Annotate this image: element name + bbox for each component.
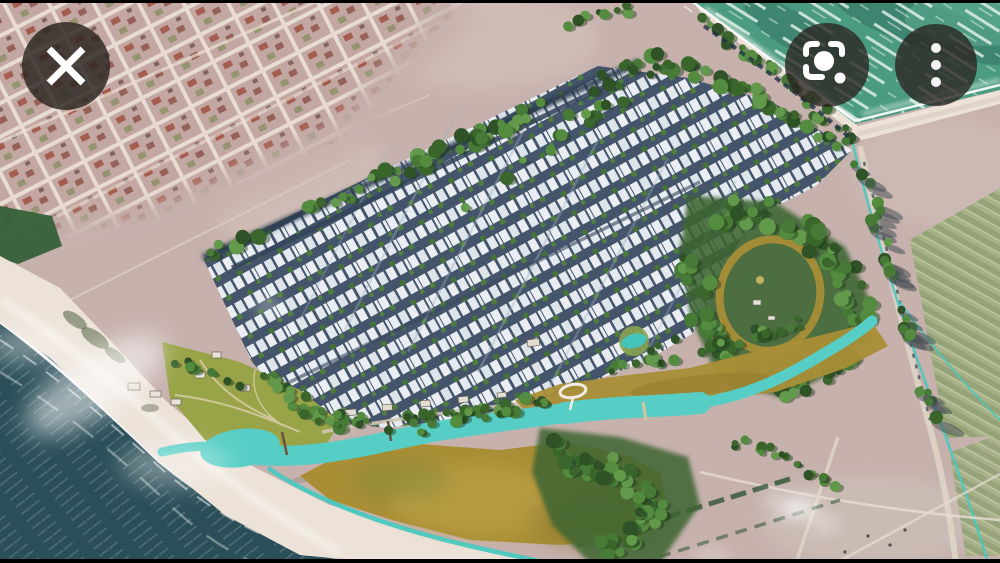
three-dot-menu-icon [929,42,943,88]
letterbox-top [0,0,1000,3]
letterbox-bottom [0,559,1000,563]
more-options-button[interactable] [895,24,977,106]
close-button[interactable] [22,22,110,110]
google-lens-button[interactable] [785,23,869,107]
google-lens-icon [802,40,852,90]
screenshot-root [0,0,1000,563]
close-x-icon [46,46,86,86]
